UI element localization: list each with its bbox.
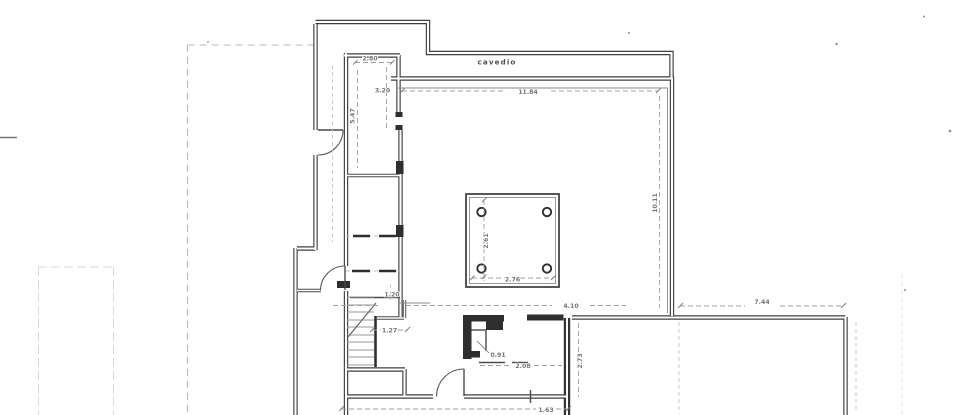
staircase [347,297,376,367]
dim-label: 0.91 [490,352,505,359]
dimension-lines [333,63,903,415]
dim-label: 2.80 [362,56,378,63]
dimension-ticks [339,60,846,411]
stair-treads [347,297,374,365]
dim-label: 4.10 [563,303,579,310]
dim-label: 7.44 [754,299,770,306]
dim-label: 5.47 [350,108,357,123]
floorplan-drawing: cavedio 2.80 3.20 5.47 11.84 10.11 2.61 … [0,0,960,415]
plan-labels: cavedio 2.80 3.20 5.47 11.84 10.11 2.61 … [350,56,771,415]
dim-label: 2.73 [577,353,584,368]
floorplan-scan: cavedio 2.80 3.20 5.47 11.84 10.11 2.61 … [0,0,960,415]
walls-outer [296,22,846,415]
scan-speckles [207,16,951,292]
door-arc-bath [437,369,465,397]
room-label-cavedio: cavedio [478,58,517,67]
dim-label: 1.27 [382,328,397,335]
dim-label: 3.20 [375,88,391,95]
shaft-corner-post [543,264,551,272]
dim-label: 1.63 [538,407,553,414]
dim-label: 2.08 [515,363,530,370]
dim-label: 2.76 [505,277,520,284]
bath-niche-walls [463,315,564,404]
shaft-square [466,194,559,287]
dim-label: 10.11 [652,193,659,213]
dim-label: 2.61 [483,233,490,248]
shaft-corner-post [543,208,551,216]
faint-adjacent-outline [38,267,114,415]
door-arc-corridor-upper [318,130,343,155]
dim-label: 11.84 [518,89,538,96]
dim-label: 1.20 [384,292,400,299]
walls-outer-core [296,22,846,415]
